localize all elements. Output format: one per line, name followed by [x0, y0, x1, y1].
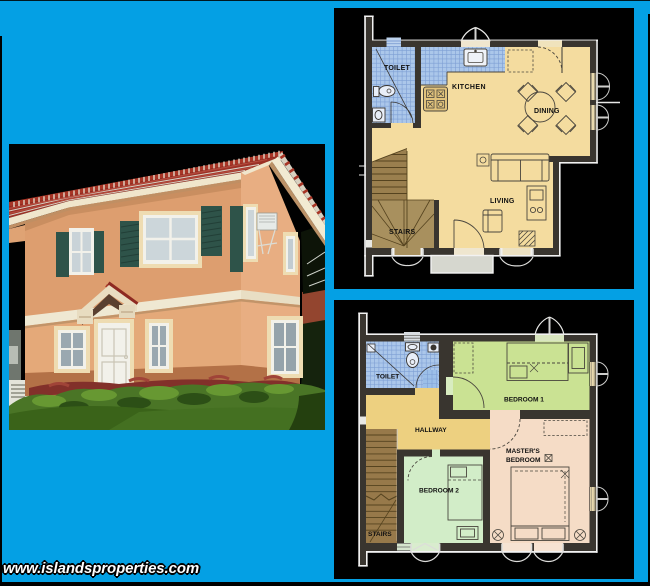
- svg-text:TOILET: TOILET: [384, 65, 410, 72]
- svg-text:TOILET: TOILET: [376, 374, 399, 381]
- svg-text:STAIRS: STAIRS: [368, 531, 392, 538]
- svg-text:BEDROOM 2: BEDROOM 2: [419, 488, 459, 495]
- svg-text:STAIRS: STAIRS: [389, 229, 415, 236]
- svg-text:HALLWAY: HALLWAY: [415, 427, 447, 434]
- svg-text:BEDROOM: BEDROOM: [506, 457, 541, 464]
- svg-text:KITCHEN: KITCHEN: [452, 84, 486, 91]
- svg-text:DINING: DINING: [534, 108, 560, 115]
- svg-text:LIVING: LIVING: [490, 198, 515, 205]
- svg-text:BEDROOM 1: BEDROOM 1: [504, 397, 544, 404]
- svg-text:MASTER'S: MASTER'S: [506, 448, 540, 455]
